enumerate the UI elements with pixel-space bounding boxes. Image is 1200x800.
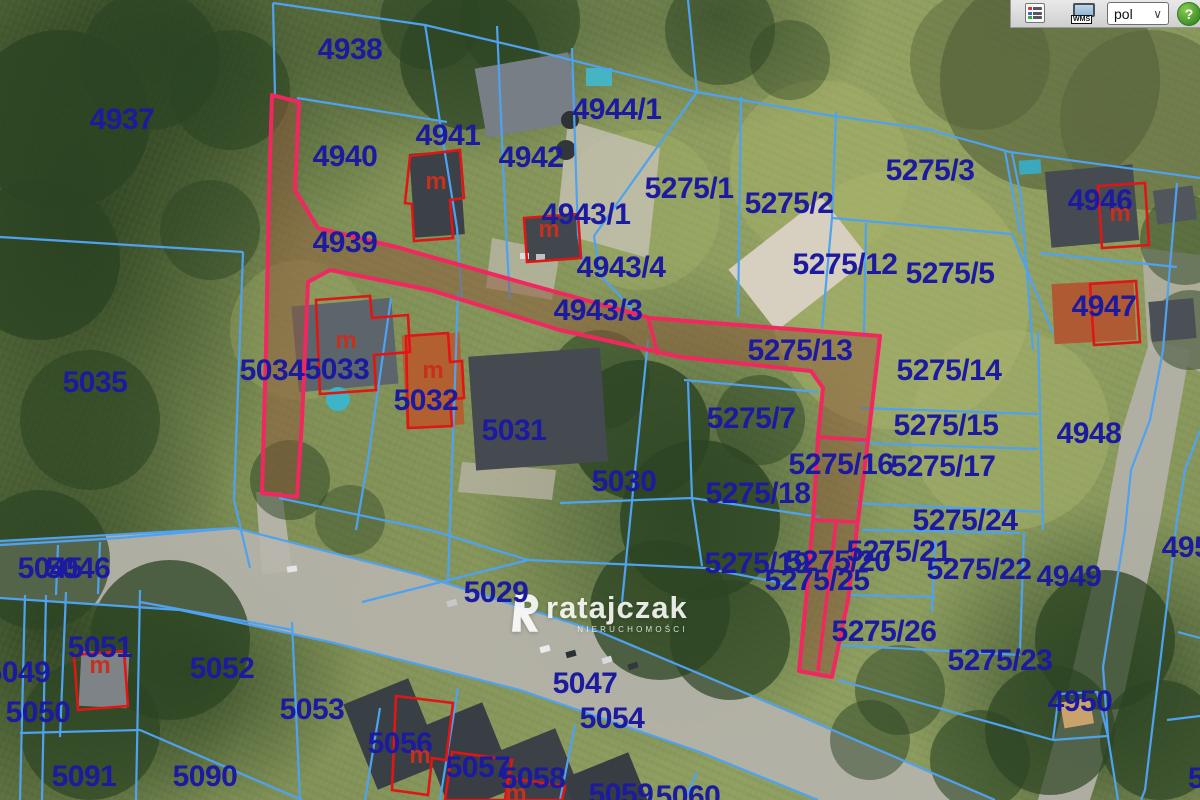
parcel-boundary-line xyxy=(848,595,935,597)
parcel-boundary-line xyxy=(685,772,697,800)
watermark-logo-icon xyxy=(512,592,542,634)
map-object xyxy=(556,140,576,160)
tree-canopy xyxy=(315,485,385,555)
map-toolbar: WMS pol ∨ ? xyxy=(1010,0,1200,28)
map-viewport[interactable]: ratajczak NIERUCHOMOŚCI 4938493749404941… xyxy=(0,0,1200,800)
watermark-brand: ratajczak xyxy=(546,592,688,623)
watermark-subtitle: NIERUCHOMOŚCI xyxy=(577,625,688,634)
building-roof xyxy=(468,348,608,471)
language-select[interactable]: pol ∨ xyxy=(1107,2,1169,25)
tree-canopy xyxy=(670,580,790,700)
tree-canopy xyxy=(20,350,160,490)
parcel-boundary-line xyxy=(862,530,1020,533)
parcel-boundary-line xyxy=(932,540,935,612)
parcel-boundary-line xyxy=(140,730,302,800)
building-roof xyxy=(1045,164,1139,247)
wms-layers-icon[interactable]: WMS xyxy=(1071,3,1097,24)
wms-label: WMS xyxy=(1071,15,1092,24)
chevron-down-icon: ∨ xyxy=(1153,8,1162,20)
map-object xyxy=(586,68,612,86)
highlighted-parcel-divider xyxy=(813,520,858,522)
tree-canopy xyxy=(750,20,830,100)
tree-canopy xyxy=(715,375,805,465)
map-object xyxy=(326,387,350,411)
tree-canopy xyxy=(160,180,260,280)
parcel-boundary-line xyxy=(1020,532,1024,650)
map-overlay xyxy=(0,0,1200,800)
parcel-boundary-line xyxy=(1178,632,1200,638)
language-select-value: pol xyxy=(1114,6,1133,22)
building-roof xyxy=(524,213,580,262)
parcel-boundary-line xyxy=(838,645,1020,655)
help-button[interactable]: ? xyxy=(1177,2,1200,26)
watermark: ratajczak NIERUCHOMOŚCI xyxy=(512,592,688,634)
building-roof xyxy=(1060,698,1094,729)
grass-patch xyxy=(910,330,1110,530)
tree-canopy xyxy=(830,700,910,780)
building-roof xyxy=(79,651,130,708)
parcel-boundary-line xyxy=(292,622,300,800)
map-object xyxy=(1019,159,1042,175)
help-label: ? xyxy=(1185,6,1194,22)
legend-icon[interactable] xyxy=(1025,3,1045,23)
map-object xyxy=(536,254,545,260)
tree-canopy xyxy=(0,490,110,630)
tree-canopy xyxy=(0,180,120,340)
map-object xyxy=(561,111,579,129)
building-roof xyxy=(1148,298,1196,342)
building-roof xyxy=(563,752,662,800)
